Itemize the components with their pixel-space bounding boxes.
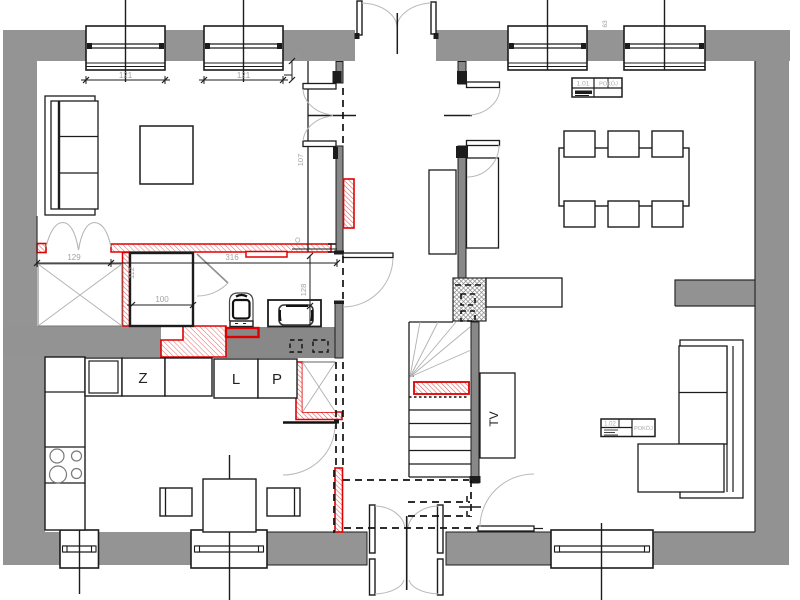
svg-text:100: 100 (155, 295, 169, 304)
svg-text:316: 316 (225, 253, 239, 262)
svg-text:POKÓJ: POKÓJ (634, 425, 653, 432)
svg-text:1.01: 1.01 (577, 81, 590, 88)
svg-text:1.02: 1.02 (604, 422, 616, 428)
svg-text:121: 121 (119, 71, 133, 80)
svg-text:POKÓJ: POKÓJ (599, 81, 618, 88)
svg-text:13: 13 (295, 53, 302, 61)
svg-text:Z: Z (138, 370, 147, 387)
svg-text:121: 121 (237, 71, 251, 80)
svg-text:129: 129 (67, 253, 81, 262)
svg-text:63: 63 (602, 20, 609, 28)
svg-text:L: L (232, 371, 240, 388)
svg-text:TV: TV (487, 411, 501, 426)
svg-text:128: 128 (299, 284, 308, 297)
svg-text:107: 107 (296, 154, 305, 167)
svg-text:O: O (295, 238, 301, 245)
svg-text:P: P (272, 371, 282, 388)
svg-text:112: 112 (127, 267, 136, 279)
